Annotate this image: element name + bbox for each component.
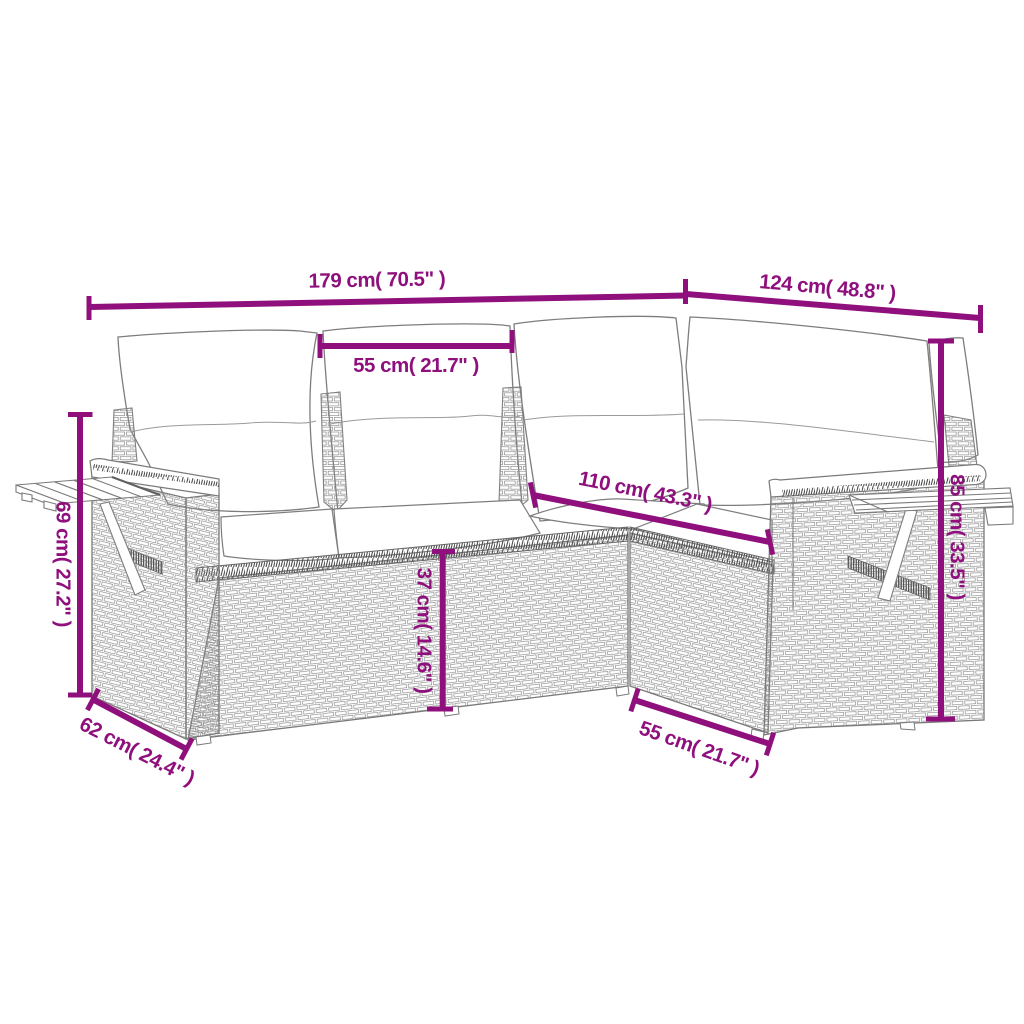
svg-text:37 cm( 14.6" ): 37 cm( 14.6" ) bbox=[413, 568, 436, 694]
svg-text:179 cm( 70.5" ): 179 cm( 70.5" ) bbox=[308, 267, 445, 292]
svg-text:55 cm( 21.7" ): 55 cm( 21.7" ) bbox=[353, 354, 479, 377]
svg-text:85 cm( 33.5" ): 85 cm( 33.5" ) bbox=[946, 474, 969, 600]
svg-text:69 cm( 27.2" ): 69 cm( 27.2" ) bbox=[52, 501, 75, 627]
